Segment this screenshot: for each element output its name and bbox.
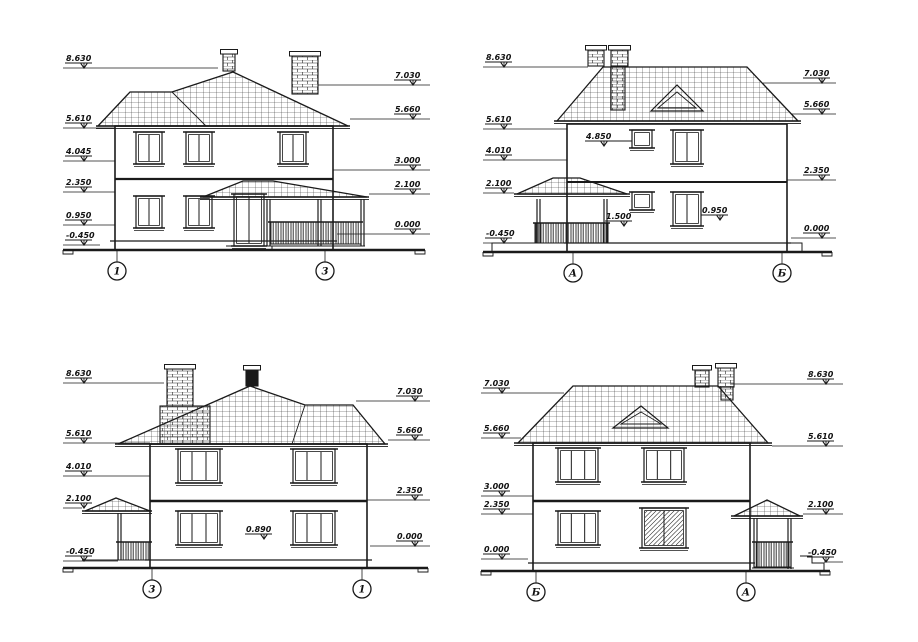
level-value: 7.030 [804,69,830,78]
level-marker: 1.500 [605,212,632,226]
level-value: 3.000 [484,482,510,491]
level-marker: 3.000 [333,156,430,170]
level-marker: 3.000 [481,482,533,496]
level-marker: 8.630 [63,54,218,68]
window [175,511,223,547]
level-value: 5.660 [395,105,421,114]
level-marker: 4.010 [63,462,150,476]
level-value: 5.610 [66,114,92,123]
level-marker: 0.000 [791,224,836,238]
elevation-view-A-B: АБ8.6305.6104.0102.100-0.4507.0305.6602.… [480,42,840,292]
chimney [244,366,261,387]
level-marker: 8.630 [63,369,164,383]
level-marker: -0.450 [63,231,100,245]
elevation-view-1-3: 138.6305.6104.0452.3500.950-0.4507.0305.… [60,42,435,292]
level-value: 0.000 [804,224,830,233]
level-value: 2.350 [397,486,423,495]
window [555,511,601,547]
level-marker: 0.000 [370,532,430,546]
window [629,192,655,212]
level-marker: 2.350 [63,178,115,192]
axis-label: А [568,269,577,280]
balustrade [754,542,791,567]
door [670,192,704,228]
level-marker: 0.890 [245,525,272,539]
level-value: 7.030 [484,379,510,388]
chimney [716,364,737,388]
drawing-sheet: 138.6305.6104.0452.3500.950-0.4507.0305.… [0,0,918,642]
level-value: 8.630 [808,370,834,379]
axis-marker: А [737,571,755,601]
balustrade [535,223,608,243]
elevation-view-B-A: БА7.0305.6603.0002.3500.0008.6305.6102.1… [478,356,848,610]
chimney [609,46,631,67]
window [183,132,215,166]
level-marker: 2.350 [367,486,430,500]
window [175,449,223,485]
level-value: 2.100 [808,500,834,509]
level-value: 2.350 [66,178,92,187]
elevation-view-3-1: 318.6305.6104.0102.100-0.4507.0305.6602.… [60,356,435,610]
chimney [693,366,712,388]
level-value: 4.010 [485,146,512,155]
level-value: 3.000 [395,156,421,165]
level-value: 5.660 [804,100,830,109]
level-value: 0.890 [246,525,272,534]
axis-marker: Б [773,252,791,282]
level-marker: 4.010 [483,146,567,160]
window [183,196,215,230]
level-marker: 5.660 [481,424,521,438]
level-marker: 8.630 [730,370,843,384]
level-value: 0.000 [395,220,421,229]
chimney [160,406,210,444]
window [629,130,655,150]
axis-marker: А [564,252,582,282]
veranda-roof [734,500,800,516]
axis-marker: 1 [108,250,126,280]
door [231,194,267,248]
level-value: -0.450 [808,548,837,557]
axis-label: 1 [359,585,366,596]
level-marker: 0.000 [481,545,528,559]
chimney [290,52,321,95]
level-value: 8.630 [66,369,92,378]
veranda-roof [85,498,150,511]
detail-line [800,556,824,571]
level-marker: 5.610 [483,115,567,129]
elevation-B-A-drawing: БА7.0305.6603.0002.3500.0008.6305.6102.1… [478,356,848,610]
chimney [721,387,733,400]
level-marker: 8.630 [483,53,588,67]
level-value: 5.610 [486,115,512,124]
level-value: 4.850 [585,132,612,141]
detail-line [787,243,802,252]
chimney [221,50,238,72]
level-value: 2.350 [484,500,510,509]
roof [557,67,798,121]
level-value: 2.100 [395,180,421,189]
elevation-3-1-drawing: 318.6305.6104.0102.100-0.4507.0305.6602.… [60,356,435,610]
level-marker: 5.660 [791,100,836,114]
chimney [611,66,625,110]
level-value: 8.630 [486,53,512,62]
axis-label: Б [777,269,787,280]
chimney [165,365,196,407]
level-value: 5.660 [397,426,423,435]
level-marker: -0.450 [483,229,515,243]
level-marker: 5.660 [350,105,430,119]
level-marker: 2.350 [481,500,533,514]
window [290,511,338,547]
axis-label: 3 [149,585,156,596]
level-value: 5.660 [484,424,510,433]
level-value: 8.630 [66,54,92,63]
axis-marker: 3 [316,250,334,280]
axis-marker: Б [527,571,545,601]
roof [118,386,385,444]
level-marker: 5.660 [388,426,430,440]
elevation-A-B-drawing: АБ8.6305.6104.0102.100-0.4507.0305.6602.… [480,42,840,292]
window [641,448,687,484]
chimney [586,46,607,67]
axis-label: 3 [322,267,329,278]
door [670,130,704,166]
level-marker: 7.030 [763,69,836,83]
level-value: -0.450 [66,231,95,240]
veranda-roof [203,181,367,197]
axis-label: 1 [114,267,121,278]
level-value: -0.450 [486,229,515,238]
level-marker: 7.030 [356,387,430,401]
level-marker: 0.950 [701,206,728,220]
level-value: -0.450 [66,547,95,556]
level-marker: 4.850 [585,132,632,146]
veranda-roof [517,178,627,194]
level-value: 5.610 [66,429,92,438]
level-value: 4.045 [65,147,92,156]
window [639,508,689,550]
level-marker: 5.610 [772,432,843,446]
level-value: 0.950 [66,211,92,220]
level-marker: 7.030 [318,71,430,85]
detail-line [492,243,525,252]
axis-marker: 1 [353,568,371,598]
axis-marker: 3 [143,568,161,598]
level-marker: 2.100 [63,494,92,508]
elevation-1-3-drawing: 138.6305.6104.0452.3500.950-0.4507.0305.… [60,42,435,292]
level-marker: 2.100 [803,500,843,514]
level-marker: 4.045 [63,147,115,161]
level-value: 1.500 [606,212,632,221]
level-marker: 0.950 [63,211,115,225]
level-value: 2.350 [804,166,830,175]
window [133,196,165,230]
level-value: 0.950 [702,206,728,215]
window [555,448,601,484]
axis-label: А [741,588,750,599]
level-value: 4.010 [65,462,92,471]
window [290,449,338,485]
level-value: 2.100 [66,494,92,503]
window [277,132,309,166]
level-value: 0.000 [484,545,510,554]
level-marker: 2.100 [369,180,430,194]
level-marker: 2.350 [787,166,836,180]
wall-outline [533,443,750,571]
level-marker: -0.450 [63,547,118,561]
window [133,132,165,166]
balustrade [118,542,150,560]
level-value: 0.000 [397,532,423,541]
balustrade [270,222,361,244]
level-value: 5.610 [808,432,834,441]
level-value: 7.030 [397,387,423,396]
level-marker: 7.030 [481,379,564,393]
axis-label: Б [531,588,541,599]
level-marker: 2.100 [483,179,514,193]
level-value: 7.030 [395,71,421,80]
level-value: 2.100 [486,179,512,188]
